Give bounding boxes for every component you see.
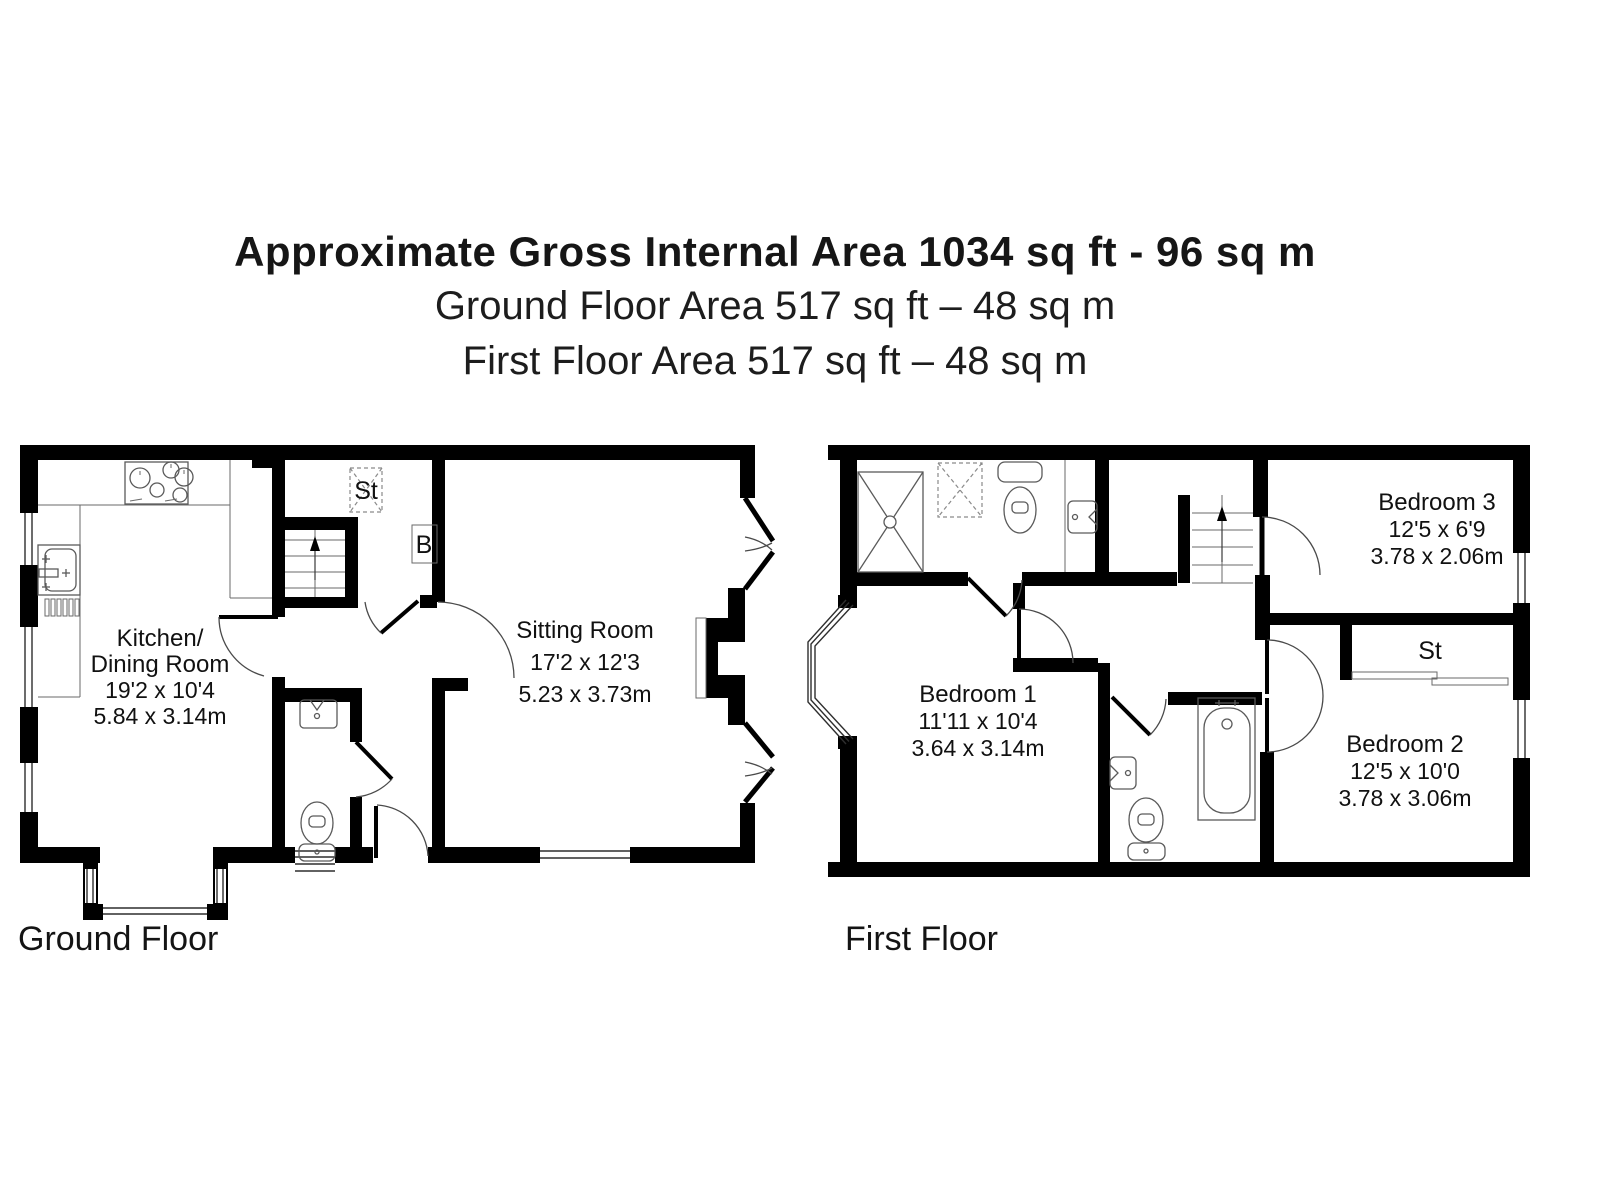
ensuite-sink-icon — [1068, 501, 1097, 533]
bedroom2-label: Bedroom 2 — [1346, 731, 1463, 759]
bathroom-sink-icon — [1110, 757, 1136, 789]
ground-internal-walls — [252, 455, 468, 863]
floorplan-page: Approximate Gross Internal Area 1034 sq … — [0, 0, 1600, 1200]
bedroom2-dims-imperial: 12'5 x 10'0 — [1350, 758, 1460, 785]
hob-icon — [125, 462, 193, 504]
kitchen-dining-label-line2: Dining Room — [91, 651, 230, 679]
first-staircase — [1192, 495, 1253, 583]
sitting-room-dims-imperial: 17'2 x 12'3 — [530, 649, 640, 676]
ground-staircase — [285, 530, 345, 597]
first-bay-window — [808, 595, 857, 749]
bedroom1-dims-metric: 3.64 x 3.14m — [912, 735, 1045, 762]
bedroom3-label: Bedroom 3 — [1378, 489, 1495, 517]
kitchen-dining-label-line1: Kitchen/ — [117, 625, 204, 653]
page-title: Approximate Gross Internal Area 1034 sq … — [234, 228, 1316, 276]
ground-floor-area-subtitle: Ground Floor Area 517 sq ft – 48 sq m — [435, 284, 1115, 329]
first-storage-sliders — [1352, 672, 1508, 685]
bath-icon — [1198, 698, 1255, 820]
ground-left-windows — [20, 513, 38, 812]
shower-icon — [858, 472, 923, 572]
hatch-icon — [938, 463, 982, 517]
floorplan-drawing — [0, 0, 1600, 1200]
first-storage-label: St — [1418, 637, 1442, 666]
wc-sink-icon — [300, 700, 337, 728]
first-floor-caption: First Floor — [845, 920, 998, 959]
bedroom3-dims-imperial: 12'5 x 6'9 — [1388, 516, 1485, 543]
kitchen-dining-dims-metric: 5.84 x 3.14m — [94, 703, 227, 730]
ground-storage-label: St — [354, 477, 378, 506]
bedroom1-label: Bedroom 1 — [919, 681, 1036, 709]
ground-floor-caption: Ground Floor — [18, 920, 218, 959]
bedroom2-dims-metric: 3.78 x 3.06m — [1339, 785, 1472, 812]
ensuite-toilet-icon — [998, 462, 1042, 533]
boiler-label: B — [416, 531, 433, 560]
ground-chimney-breast — [696, 618, 745, 698]
bedroom3-dims-metric: 3.78 x 2.06m — [1371, 543, 1504, 570]
ground-doors — [219, 498, 773, 858]
bathroom-toilet-icon — [1128, 798, 1165, 860]
kitchen-dining-dims-imperial: 19'2 x 10'4 — [105, 677, 215, 704]
ground-bay-window — [83, 847, 228, 920]
bedroom1-dims-imperial: 11'11 x 10'4 — [918, 708, 1037, 735]
sitting-room-dims-metric: 5.23 x 3.73m — [519, 681, 652, 708]
kitchen-sink-icon — [38, 545, 80, 616]
sitting-room-label: Sitting Room — [516, 617, 653, 645]
first-floor-area-subtitle: First Floor Area 517 sq ft – 48 sq m — [463, 339, 1088, 384]
